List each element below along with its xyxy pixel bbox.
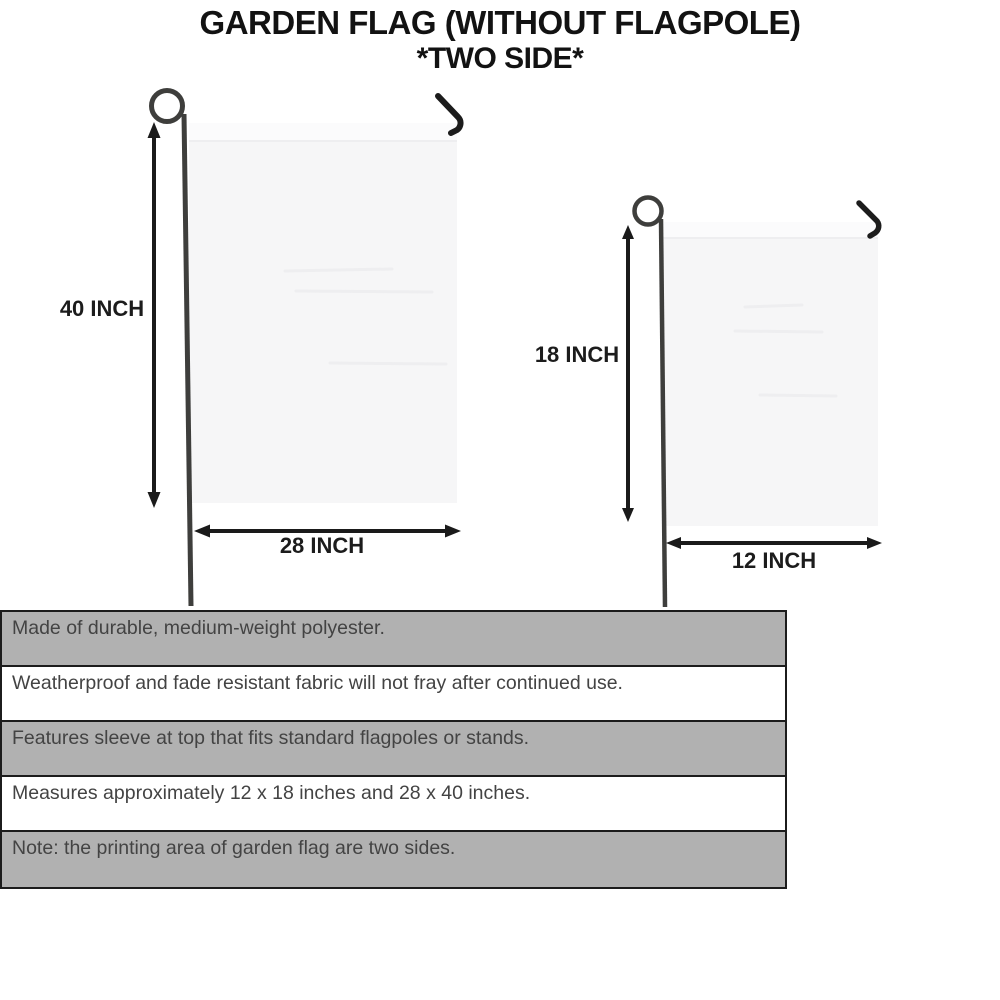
spec-row-note: Note: the printing area of garden flag a… bbox=[2, 832, 785, 887]
large-flag-width-label: 28 INCH bbox=[240, 533, 404, 559]
small-flag-height-label: 18 INCH bbox=[515, 342, 639, 368]
spec-row-measurements: Measures approximately 12 x 18 inches an… bbox=[2, 777, 785, 832]
spec-row-weatherproof: Weatherproof and fade resistant fabric w… bbox=[2, 667, 785, 722]
spec-table: Made of durable, medium-weight polyester… bbox=[0, 610, 787, 889]
large-flagpole-loop-icon bbox=[152, 91, 183, 122]
small-flag-width-label: 12 INCH bbox=[692, 548, 856, 574]
large-flag-sleeve bbox=[189, 123, 457, 140]
small-flag-canvas bbox=[663, 222, 878, 526]
spec-row-sleeve: Features sleeve at top that fits standar… bbox=[2, 722, 785, 777]
large-flag-diagram bbox=[148, 91, 462, 607]
spec-row-material: Made of durable, medium-weight polyester… bbox=[2, 612, 785, 667]
large-flag-canvas bbox=[189, 123, 457, 503]
large-flag-height-label: 40 INCH bbox=[40, 296, 164, 322]
small-flagpole-loop-icon bbox=[635, 198, 662, 225]
small-flag-diagram bbox=[622, 198, 882, 608]
small-flag-sleeve bbox=[663, 222, 878, 237]
small-height-arrow-icon bbox=[622, 225, 634, 522]
product-infographic: GARDEN FLAG (WITHOUT FLAGPOLE) *TWO SIDE… bbox=[0, 0, 1000, 1000]
